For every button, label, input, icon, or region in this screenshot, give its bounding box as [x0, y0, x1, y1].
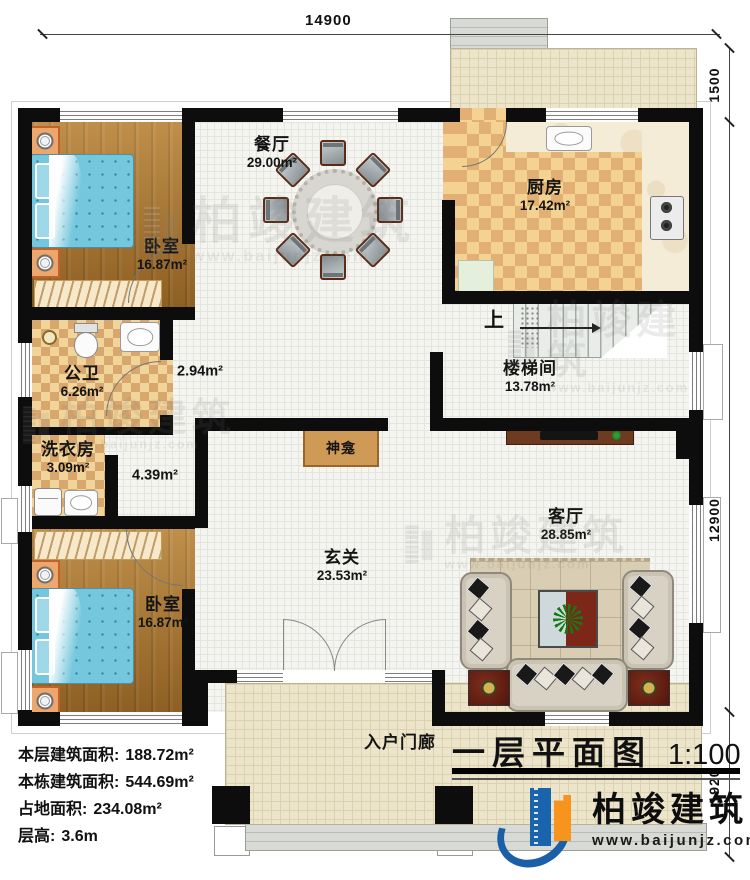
room-area: 2.94m² [177, 363, 223, 380]
company-name: 柏竣建筑 [592, 792, 750, 829]
stair-arrow-head [592, 323, 601, 333]
wall-kitchen-left [442, 200, 455, 304]
porch-column [212, 786, 250, 824]
room-name: 餐厅 [254, 135, 290, 155]
room-area: 17.42m² [520, 198, 570, 214]
hall-upper-label: 2.94m² [177, 363, 223, 380]
room-name: 公卫 [64, 364, 100, 384]
wall-right [689, 108, 703, 726]
stat-value: 3.6m [61, 828, 97, 845]
porch-label: 入户门廊 [364, 733, 436, 753]
foyer-label: 玄关 23.53m² [317, 548, 367, 584]
toilet [74, 332, 98, 358]
kitchen-label: 厨房 17.42m² [520, 178, 570, 214]
room-area: 16.87m² [137, 257, 187, 273]
kitchen-sink [546, 126, 592, 151]
bathroom-sink [120, 322, 160, 352]
window [60, 108, 182, 122]
window [18, 650, 32, 710]
hall-lower-label: 4.39m² [132, 467, 178, 484]
stat-line: 层高:3.6m [18, 823, 194, 850]
nightstand [30, 560, 60, 590]
window [60, 712, 182, 726]
nightstand [30, 126, 60, 156]
room-name: 楼梯间 [503, 359, 557, 379]
porch-column [435, 786, 473, 824]
tv [540, 431, 598, 440]
room-area: 13.78m² [505, 379, 555, 395]
window [689, 505, 703, 623]
stat-label: 层高: [18, 828, 55, 845]
stat-label: 本层建筑面积: [18, 747, 119, 764]
stove [650, 196, 684, 240]
dimension-line-top [40, 34, 720, 35]
dining-label: 餐厅 29.00m² [247, 135, 297, 171]
bed [30, 588, 134, 684]
entry-door-leaf [283, 619, 284, 670]
window-sill [1, 652, 18, 714]
dimension-top-label: 14900 [305, 12, 352, 29]
stat-value: 234.08m² [93, 801, 162, 818]
wall-stair-stub [430, 352, 443, 418]
nightstand [30, 248, 60, 278]
wall-bathroom-right-lower [160, 415, 173, 427]
room-area: 28.85m² [541, 527, 591, 543]
logo-building-orange [554, 795, 571, 841]
stat-label: 占地面积: [18, 801, 87, 818]
room-name: 卧室 [145, 595, 181, 615]
title-underline-thin [452, 778, 740, 780]
wall-foyer-top [208, 418, 388, 431]
window [283, 108, 398, 122]
entry-door-gap [283, 670, 385, 683]
window [18, 343, 32, 397]
room-name: 玄关 [324, 548, 360, 568]
kitchen-door-gap [460, 108, 506, 122]
room-area: 16.87m² [138, 615, 188, 631]
stairwell-label: 楼梯间 13.78m² [503, 359, 557, 395]
company-website: www.baijunjz.com [592, 832, 750, 849]
plant [612, 431, 621, 440]
shrine-table: 神龛 [303, 429, 379, 467]
bed-sheet [49, 155, 83, 247]
entry-door-leaf [385, 619, 386, 670]
window-sill [1, 498, 18, 544]
window-sill [703, 344, 723, 420]
window-sidelight [237, 670, 283, 683]
stair-up-label: 上 [484, 304, 504, 333]
stat-value: 544.69m² [125, 774, 194, 791]
dining-chair [320, 140, 346, 166]
coffee-table [538, 590, 598, 648]
dining-chair [263, 197, 289, 223]
bedroom2-label: 卧室 16.87m² [138, 595, 188, 631]
burner [661, 202, 672, 213]
bedroom1-label: 卧室 16.87m² [137, 237, 187, 273]
wall-bathroom-bottom [32, 427, 173, 435]
wall-living-stub [676, 431, 689, 459]
wall-bedroom1-right [182, 122, 195, 244]
window [18, 486, 32, 532]
wall-left [18, 108, 32, 726]
dimension-right-top-label: 1500 [706, 67, 722, 102]
dining-chair [320, 254, 346, 280]
wall-laundry-right [105, 455, 118, 516]
wall-laundry-bottom [32, 516, 195, 529]
washing-machine [34, 488, 62, 516]
back-porch-floor [450, 48, 697, 111]
room-name: 厨房 [527, 178, 563, 198]
room-name: 入户门廊 [364, 733, 436, 753]
title-underline [452, 768, 740, 774]
living-label: 客厅 28.85m² [541, 507, 591, 543]
end-table [468, 670, 510, 706]
wall-jog-left [195, 670, 208, 726]
room-name: 客厅 [548, 507, 584, 527]
floor-drain [42, 330, 57, 345]
stat-line: 本层建筑面积:188.72m² [18, 742, 194, 769]
room-area: 23.53m² [317, 568, 367, 584]
window-sidelight [385, 670, 432, 683]
window [689, 352, 703, 410]
window [546, 108, 638, 122]
window [545, 712, 609, 726]
bed [30, 154, 134, 248]
company-logo: 柏竣建筑 www.baijunjz.com [496, 786, 750, 858]
company-logo-icon [496, 786, 588, 858]
laundry-label: 洗衣房 3.09m² [41, 440, 95, 476]
wall-foyer-left [195, 418, 208, 528]
stair-break [601, 300, 667, 358]
wall-kitchen-bottom [442, 291, 703, 304]
shrine-label: 神龛 [326, 440, 356, 457]
room-area: 3.09m² [47, 460, 90, 476]
wall-bathroom-right-upper [160, 320, 173, 360]
plan-title: 一层平面图 [452, 726, 652, 774]
kitchen-entry-floor [443, 122, 455, 204]
stat-value: 188.72m² [125, 747, 194, 764]
stat-label: 本栋建筑面积: [18, 774, 119, 791]
title-block: 一层平面图 1:100 [452, 726, 741, 774]
burner [661, 220, 672, 231]
floorplan-page: { "title_block": { "title": "一层平面图", "sc… [0, 0, 750, 865]
stat-line: 本栋建筑面积:544.69m² [18, 769, 194, 796]
room-name: 卧室 [144, 237, 180, 257]
dining-chair [377, 197, 403, 223]
stat-line: 占地面积:234.08m² [18, 796, 194, 823]
logo-building-blue [530, 788, 551, 846]
stair-direction-arrow [520, 327, 592, 329]
bed-sheet [49, 589, 83, 683]
fridge [458, 260, 494, 292]
end-table [628, 670, 670, 706]
area-stats: 本层建筑面积:188.72m² 本栋建筑面积:544.69m² 占地面积:234… [18, 742, 194, 850]
laundry-sink [64, 490, 98, 516]
room-name: 洗衣房 [41, 440, 95, 460]
bathroom-label: 公卫 6.26m² [61, 364, 104, 400]
dimension-right-middle-label: 12900 [706, 498, 722, 542]
room-area: 29.00m² [247, 155, 297, 171]
wall-stair-living [430, 418, 689, 431]
wall-bedroom1-bottom [32, 307, 195, 320]
room-area: 4.39m² [132, 467, 178, 484]
wall-bedroom2-right-upper [182, 516, 195, 529]
room-area: 6.26m² [61, 384, 104, 400]
